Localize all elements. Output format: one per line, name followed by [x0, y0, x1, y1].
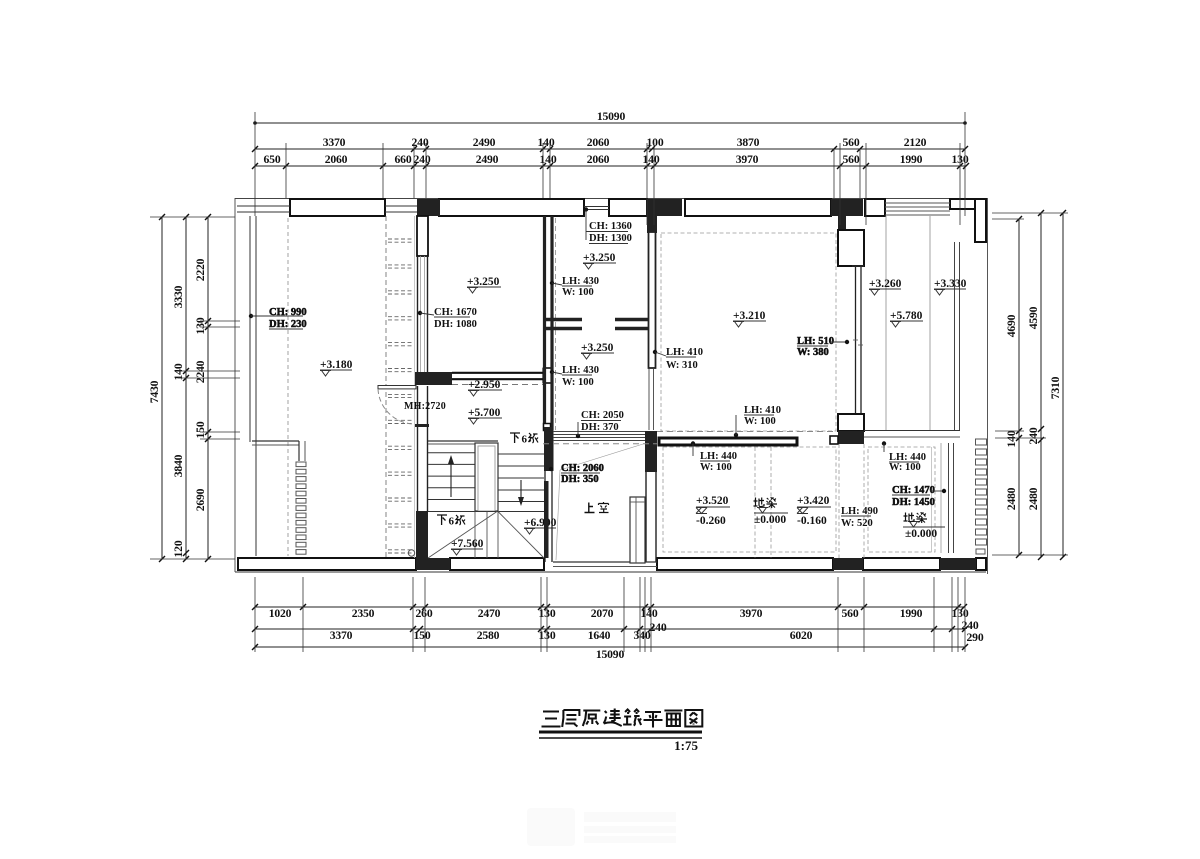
svg-text:2060: 2060 [587, 153, 610, 166]
svg-text:-0.260: -0.260 [696, 515, 726, 527]
svg-text:MH:2720: MH:2720 [404, 401, 446, 412]
svg-text:2350: 2350 [352, 607, 375, 620]
svg-text:+2.950: +2.950 [468, 379, 501, 391]
svg-text:CH: 2050: CH: 2050 [581, 410, 624, 421]
svg-text:150: 150 [414, 629, 431, 642]
svg-text:2490: 2490 [473, 136, 496, 149]
svg-text:CH: 2060: CH: 2060 [561, 463, 604, 474]
svg-text:6: 6 [449, 516, 455, 528]
svg-text:LH: 410: LH: 410 [666, 347, 703, 358]
svg-text:4590: 4590 [1027, 306, 1040, 329]
svg-text:7430: 7430 [148, 380, 161, 403]
svg-text:240: 240 [1027, 427, 1040, 444]
svg-text:3970: 3970 [736, 153, 759, 166]
svg-text:2480: 2480 [1005, 487, 1018, 510]
svg-text:15090: 15090 [596, 648, 625, 661]
svg-text:LH: 440: LH: 440 [700, 451, 737, 462]
svg-text:3870: 3870 [737, 136, 760, 149]
svg-text:+3.210: +3.210 [733, 310, 766, 322]
svg-text:2240: 2240 [194, 360, 207, 383]
svg-text:+3.420: +3.420 [797, 495, 830, 507]
svg-text:560: 560 [843, 153, 860, 166]
svg-text:CH: 990: CH: 990 [269, 307, 307, 318]
svg-text:LH: 410: LH: 410 [744, 405, 781, 416]
svg-text:2480: 2480 [1027, 487, 1040, 510]
svg-text:3970: 3970 [740, 607, 763, 620]
svg-text:3370: 3370 [323, 136, 346, 149]
svg-text:140: 140 [540, 153, 557, 166]
svg-text:2060: 2060 [587, 136, 610, 149]
svg-text:+5.700: +5.700 [468, 407, 501, 419]
svg-text:+7.560: +7.560 [451, 538, 484, 550]
svg-text:3840: 3840 [172, 454, 185, 477]
svg-text:+3.250: +3.250 [583, 252, 616, 264]
svg-text:W: 520: W: 520 [841, 518, 873, 529]
svg-text:2120: 2120 [904, 136, 927, 149]
svg-text:560: 560 [842, 607, 859, 620]
svg-text:140: 140 [643, 153, 660, 166]
svg-text:LH: 510: LH: 510 [797, 336, 834, 347]
svg-text:260: 260 [416, 607, 433, 620]
svg-text:150: 150 [194, 421, 207, 438]
svg-text:1990: 1990 [900, 607, 923, 620]
svg-text:660: 660 [395, 153, 412, 166]
svg-text:6020: 6020 [790, 629, 813, 642]
svg-text:130: 130 [194, 317, 207, 334]
svg-text:LH: 430: LH: 430 [562, 276, 599, 287]
svg-text:W: 100: W: 100 [562, 377, 594, 388]
svg-text:W: 100: W: 100 [889, 462, 921, 473]
svg-text:1020: 1020 [269, 607, 292, 620]
svg-text:CH: 1360: CH: 1360 [589, 221, 632, 232]
svg-text:DH: 1450: DH: 1450 [892, 497, 935, 508]
svg-text:±0.000: ±0.000 [905, 528, 937, 540]
svg-text:DH: 1080: DH: 1080 [434, 319, 477, 330]
svg-text:DH: 370: DH: 370 [581, 422, 619, 433]
svg-text:560: 560 [843, 136, 860, 149]
svg-text:6: 6 [522, 434, 528, 446]
svg-text:120: 120 [172, 540, 185, 557]
svg-text:-0.160: -0.160 [797, 515, 827, 527]
svg-text:2490: 2490 [476, 153, 499, 166]
svg-text:W: 100: W: 100 [744, 416, 776, 427]
svg-text:3370: 3370 [330, 629, 353, 642]
svg-text:3330: 3330 [172, 285, 185, 308]
svg-text:1:75: 1:75 [674, 738, 698, 753]
svg-text:+3.520: +3.520 [696, 495, 729, 507]
svg-text:W: 310: W: 310 [666, 360, 698, 371]
svg-text:DH: 1300: DH: 1300 [589, 233, 632, 244]
svg-text:2580: 2580 [477, 629, 500, 642]
svg-text:2470: 2470 [478, 607, 501, 620]
svg-text:650: 650 [264, 153, 281, 166]
svg-text:7310: 7310 [1049, 376, 1062, 399]
svg-text:2070: 2070 [591, 607, 614, 620]
svg-text:W: 100: W: 100 [562, 287, 594, 298]
svg-text:140: 140 [1005, 430, 1018, 447]
svg-text:DH: 230: DH: 230 [269, 319, 307, 330]
svg-text:2220: 2220 [194, 258, 207, 281]
svg-text:CH: 1470: CH: 1470 [892, 485, 935, 496]
svg-text:15090: 15090 [597, 110, 626, 123]
svg-text:+5.780: +5.780 [890, 310, 923, 322]
svg-text:CH: 1670: CH: 1670 [434, 307, 477, 318]
svg-text:LH: 490: LH: 490 [841, 506, 878, 517]
svg-text:2690: 2690 [194, 488, 207, 511]
svg-text:DH: 350: DH: 350 [561, 474, 599, 485]
svg-text:+3.250: +3.250 [467, 276, 500, 288]
svg-text:LH: 430: LH: 430 [562, 365, 599, 376]
svg-text:W: 100: W: 100 [700, 462, 732, 473]
svg-text:2060: 2060 [325, 153, 348, 166]
svg-text:290: 290 [967, 631, 984, 644]
svg-text:1990: 1990 [900, 153, 923, 166]
svg-text:4690: 4690 [1005, 314, 1018, 337]
svg-text:+3.250: +3.250 [581, 342, 614, 354]
svg-text:W: 380: W: 380 [797, 347, 829, 358]
svg-text:±0.000: ±0.000 [754, 514, 786, 526]
svg-text:+3.330: +3.330 [934, 278, 967, 290]
svg-text:+3.180: +3.180 [320, 359, 353, 371]
svg-text:1640: 1640 [588, 629, 611, 642]
svg-text:+3.260: +3.260 [869, 278, 902, 290]
